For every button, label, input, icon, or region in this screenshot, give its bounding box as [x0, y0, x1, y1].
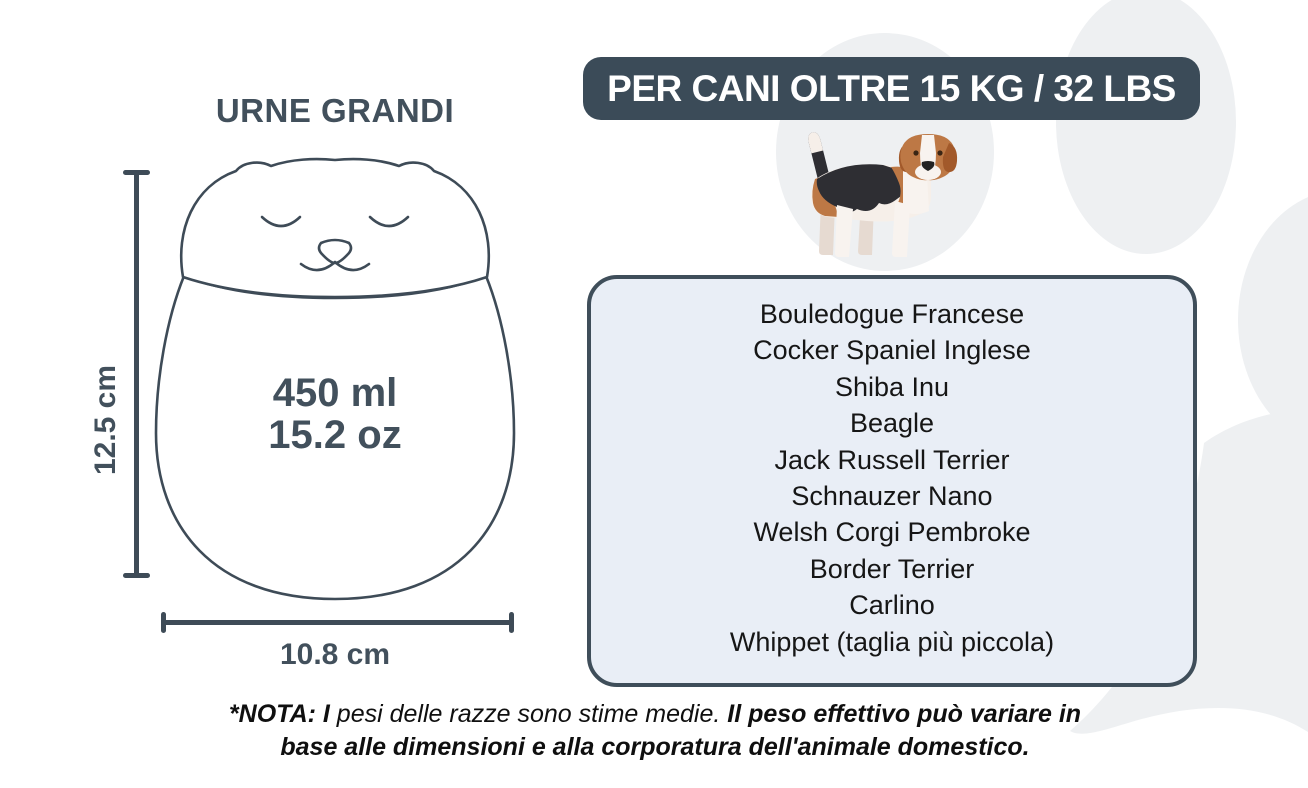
beagle-dog-icon [795, 131, 970, 266]
weight-category-header: PER CANI OLTRE 15 KG / 32 LBS [583, 57, 1200, 120]
breed-item: Whippet (taglia più piccola) [591, 624, 1193, 660]
volume-ml: 450 ml [190, 372, 480, 414]
volume-oz: 15.2 oz [190, 414, 480, 456]
breed-item: Cocker Spaniel Inglese [591, 332, 1193, 368]
note-bold-intro: *NOTA: I [229, 700, 337, 728]
urn-section-title: URNE GRANDI [140, 92, 530, 130]
breed-item: Beagle [591, 405, 1193, 441]
breed-item: Carlino [591, 587, 1193, 623]
paw-toe-icon [1056, 0, 1236, 254]
breed-item: Welsh Corgi Pembroke [591, 514, 1193, 550]
breed-item: Jack Russell Terrier [591, 442, 1193, 478]
breed-item: Shiba Inu [591, 369, 1193, 405]
urn-lid-outline [181, 159, 489, 297]
urn-height-label: 12.5 cm [88, 340, 124, 500]
breed-item: Schnauzer Nano [591, 478, 1193, 514]
breed-item: Border Terrier [591, 551, 1193, 587]
height-dimension-line [134, 172, 139, 576]
note-text: *NOTA: I pesi delle razze sono stime med… [204, 698, 1106, 764]
width-dimension-line [163, 620, 512, 625]
width-dimension-cap [509, 612, 514, 633]
breed-item: Bouledogue Francese [591, 296, 1193, 332]
breed-list-box: Bouledogue FranceseCocker Spaniel Ingles… [587, 275, 1197, 687]
paw-toe-icon [1238, 190, 1308, 450]
note-regular: pesi delle razze sono stime medie. [337, 700, 727, 728]
urn-volume-label: 450 ml 15.2 oz [190, 372, 480, 456]
width-dimension-cap [161, 612, 166, 633]
urn-width-label: 10.8 cm [185, 638, 485, 672]
